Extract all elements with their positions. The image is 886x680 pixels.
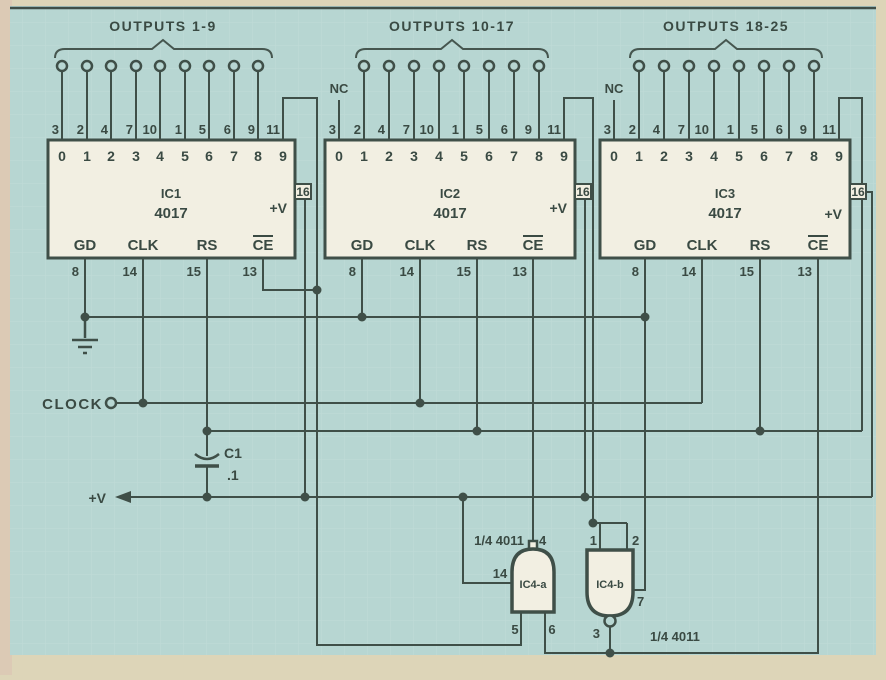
svg-text:7: 7 xyxy=(678,122,685,137)
svg-text:2: 2 xyxy=(629,122,636,137)
svg-text:2: 2 xyxy=(660,148,668,164)
gate-b-power-pin: 7 xyxy=(637,594,644,609)
ic1-outputs-label: OUTPUTS 1-9 xyxy=(109,18,217,34)
svg-text:RS: RS xyxy=(750,237,771,254)
svg-text:GD: GD xyxy=(74,237,97,254)
svg-text:7: 7 xyxy=(510,148,518,164)
svg-text:4: 4 xyxy=(710,148,718,164)
svg-text:16: 16 xyxy=(296,185,310,199)
svg-text:0: 0 xyxy=(58,148,66,164)
svg-text:3: 3 xyxy=(685,148,693,164)
gate-a-label: IC4-a xyxy=(520,579,548,591)
output-terminal xyxy=(734,61,744,71)
svg-text:0: 0 xyxy=(335,148,343,164)
gate-b-output-pin: 3 xyxy=(593,626,600,641)
svg-text:5: 5 xyxy=(476,122,483,137)
ic2-nc-label: NC xyxy=(330,81,349,96)
output-terminal xyxy=(784,61,794,71)
svg-text:14: 14 xyxy=(123,264,138,279)
svg-text:CLK: CLK xyxy=(405,237,436,254)
clock-input-terminal xyxy=(106,398,116,408)
svg-text:11: 11 xyxy=(547,122,561,137)
svg-text:16: 16 xyxy=(576,185,590,199)
svg-text:8: 8 xyxy=(810,148,818,164)
gate-a-part-label: 1/4 4011 xyxy=(474,533,524,548)
output-terminal xyxy=(434,61,444,71)
ic3-name: IC3 xyxy=(715,186,735,201)
svg-text:RS: RS xyxy=(197,237,218,254)
svg-text:9: 9 xyxy=(279,148,287,164)
gate-b-input-pin-1: 1 xyxy=(590,533,597,548)
svg-text:2: 2 xyxy=(354,122,361,137)
svg-text:15: 15 xyxy=(457,264,471,279)
svg-text:9: 9 xyxy=(525,122,532,137)
vplus-rail-label: +V xyxy=(88,490,106,506)
svg-text:7: 7 xyxy=(403,122,410,137)
svg-text:CLK: CLK xyxy=(128,237,159,254)
svg-text:5: 5 xyxy=(181,148,189,164)
svg-text:13: 13 xyxy=(513,264,527,279)
output-terminal xyxy=(106,61,116,71)
output-terminal xyxy=(82,61,92,71)
output-terminal xyxy=(709,61,719,71)
svg-text:5: 5 xyxy=(199,122,206,137)
output-terminal xyxy=(57,61,67,71)
svg-text:10: 10 xyxy=(420,122,434,137)
cap-value-label: .1 xyxy=(227,467,239,483)
ic3-nc-label: NC xyxy=(605,81,624,96)
svg-text:9: 9 xyxy=(248,122,255,137)
output-terminal xyxy=(253,61,263,71)
circuit-schematic: C1 .1 CLOCK +V OUTPUTS 1-9 324710156911 … xyxy=(0,0,886,675)
ic3-vplus-label: +V xyxy=(824,206,842,222)
svg-text:10: 10 xyxy=(695,122,709,137)
output-terminal xyxy=(384,61,394,71)
svg-text:5: 5 xyxy=(460,148,468,164)
svg-text:3: 3 xyxy=(329,122,336,137)
svg-text:CE: CE xyxy=(523,237,544,254)
ic3-outputs-label: OUTPUTS 18-25 xyxy=(663,18,789,34)
svg-text:6: 6 xyxy=(485,148,493,164)
ic1-name: IC1 xyxy=(161,186,181,201)
output-terminal xyxy=(459,61,469,71)
svg-text:1: 1 xyxy=(175,122,182,137)
svg-text:1: 1 xyxy=(727,122,734,137)
svg-text:1: 1 xyxy=(83,148,91,164)
svg-text:CE: CE xyxy=(808,237,829,254)
gate-a-input-pin-5: 5 xyxy=(511,622,518,637)
svg-text:8: 8 xyxy=(254,148,262,164)
svg-text:6: 6 xyxy=(776,122,783,137)
ic2-vplus-label: +V xyxy=(549,200,567,216)
output-terminal xyxy=(509,61,519,71)
svg-text:0: 0 xyxy=(610,148,618,164)
output-terminal xyxy=(359,61,369,71)
svg-text:5: 5 xyxy=(735,148,743,164)
svg-text:2: 2 xyxy=(107,148,115,164)
clock-label: CLOCK xyxy=(42,396,103,413)
output-terminal xyxy=(155,61,165,71)
svg-text:4: 4 xyxy=(156,148,164,164)
svg-text:1: 1 xyxy=(635,148,643,164)
gate-b-part-label: 1/4 4011 xyxy=(650,629,700,644)
gate-b-label: IC4-b xyxy=(596,579,624,591)
svg-text:7: 7 xyxy=(230,148,238,164)
svg-text:CE: CE xyxy=(253,237,274,254)
svg-text:2: 2 xyxy=(77,122,84,137)
svg-text:14: 14 xyxy=(400,264,415,279)
output-terminal xyxy=(634,61,644,71)
svg-text:11: 11 xyxy=(822,122,836,137)
gate-a-input-pin-6: 6 xyxy=(548,622,555,637)
svg-text:5: 5 xyxy=(751,122,758,137)
ic3-part: 4017 xyxy=(708,205,741,222)
output-terminal xyxy=(484,61,494,71)
svg-text:9: 9 xyxy=(835,148,843,164)
output-terminal xyxy=(180,61,190,71)
svg-text:6: 6 xyxy=(224,122,231,137)
svg-text:4: 4 xyxy=(653,122,661,137)
ic1-vplus-label: +V xyxy=(269,200,287,216)
svg-text:11: 11 xyxy=(266,122,280,137)
svg-text:15: 15 xyxy=(187,264,201,279)
cap-name-label: C1 xyxy=(224,445,242,461)
output-terminal xyxy=(684,61,694,71)
svg-text:13: 13 xyxy=(243,264,257,279)
panel-texture xyxy=(10,6,876,655)
svg-text:8: 8 xyxy=(72,264,79,279)
svg-text:4: 4 xyxy=(435,148,443,164)
gate-a-power-pin: 14 xyxy=(493,566,508,581)
output-terminal xyxy=(204,61,214,71)
ic1-part: 4017 xyxy=(154,205,187,222)
svg-text:CLK: CLK xyxy=(687,237,718,254)
ic2-outputs-label: OUTPUTS 10-17 xyxy=(389,18,515,34)
svg-text:4: 4 xyxy=(378,122,386,137)
svg-text:16: 16 xyxy=(851,185,865,199)
svg-text:6: 6 xyxy=(760,148,768,164)
svg-text:14: 14 xyxy=(682,264,697,279)
output-terminal xyxy=(809,61,819,71)
output-terminal xyxy=(409,61,419,71)
output-terminal xyxy=(534,61,544,71)
ic2-part: 4017 xyxy=(433,205,466,222)
gate-b-input-pin-2: 2 xyxy=(632,533,639,548)
svg-text:7: 7 xyxy=(785,148,793,164)
svg-text:8: 8 xyxy=(535,148,543,164)
svg-text:GD: GD xyxy=(351,237,374,254)
svg-text:13: 13 xyxy=(798,264,812,279)
svg-text:GD: GD xyxy=(634,237,657,254)
svg-text:3: 3 xyxy=(604,122,611,137)
svg-text:9: 9 xyxy=(800,122,807,137)
output-terminal xyxy=(229,61,239,71)
svg-text:3: 3 xyxy=(132,148,140,164)
svg-text:3: 3 xyxy=(52,122,59,137)
svg-text:8: 8 xyxy=(349,264,356,279)
output-terminal xyxy=(659,61,669,71)
output-terminal xyxy=(759,61,769,71)
svg-text:3: 3 xyxy=(410,148,418,164)
ic2-name: IC2 xyxy=(440,186,460,201)
svg-text:9: 9 xyxy=(560,148,568,164)
svg-text:6: 6 xyxy=(205,148,213,164)
svg-text:10: 10 xyxy=(143,122,157,137)
svg-text:6: 6 xyxy=(501,122,508,137)
gate-b-inverter-bubble xyxy=(605,616,616,627)
svg-text:1: 1 xyxy=(360,148,368,164)
svg-text:7: 7 xyxy=(126,122,133,137)
svg-text:1: 1 xyxy=(452,122,459,137)
svg-text:15: 15 xyxy=(740,264,754,279)
svg-text:8: 8 xyxy=(632,264,639,279)
output-terminal xyxy=(131,61,141,71)
svg-text:4: 4 xyxy=(101,122,109,137)
svg-text:2: 2 xyxy=(385,148,393,164)
gate-a-output-pin: 4 xyxy=(539,533,547,548)
svg-text:RS: RS xyxy=(467,237,488,254)
